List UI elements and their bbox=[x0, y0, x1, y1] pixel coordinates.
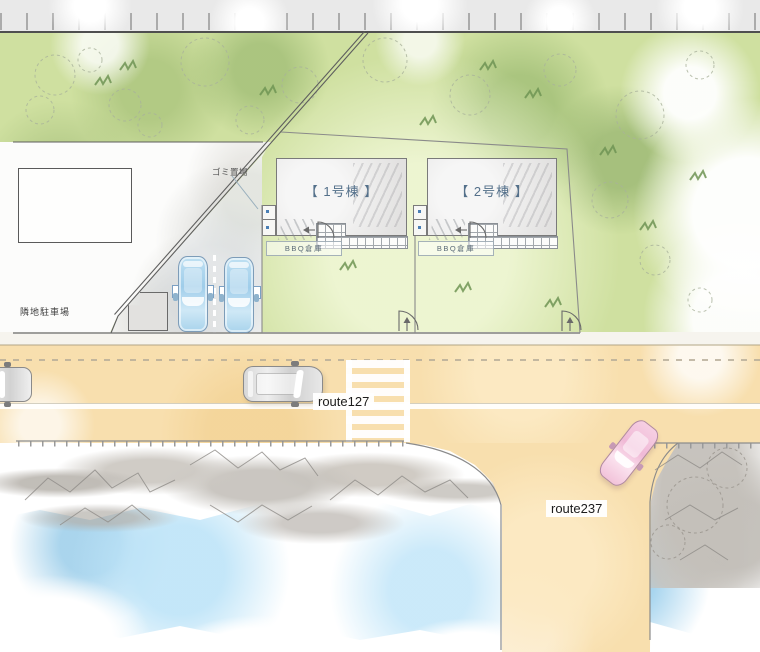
car-mirror bbox=[4, 362, 11, 367]
car-windshield bbox=[0, 371, 5, 398]
utility-box-1a bbox=[262, 205, 276, 220]
rocky-shore-left bbox=[0, 443, 515, 563]
bbq-storage-label-2: BBQ倉庫 bbox=[418, 241, 494, 256]
car-mirror bbox=[173, 293, 178, 301]
hatched-paving-2 bbox=[429, 219, 466, 240]
building-1-label: 【 1号棟 】 bbox=[277, 181, 406, 200]
car-rear-window bbox=[229, 262, 249, 268]
foam-blob bbox=[690, 590, 760, 652]
route127-label: route127 bbox=[313, 393, 374, 410]
building-2-label: 【 2号棟 】 bbox=[428, 181, 556, 200]
car-roof bbox=[184, 268, 202, 293]
car-mirror bbox=[4, 402, 11, 407]
car-mirror bbox=[219, 294, 224, 302]
parking-car-2 bbox=[224, 257, 254, 333]
garbage-area-label: ゴミ置場 bbox=[212, 166, 248, 178]
utility-box-2a bbox=[413, 205, 427, 220]
gray-hatchback-car bbox=[0, 367, 32, 402]
parking-car-1 bbox=[178, 256, 208, 332]
car-windshield bbox=[228, 298, 250, 307]
car-rear-window bbox=[248, 371, 253, 397]
neighbor-parking-lot bbox=[18, 168, 132, 243]
car-mirror bbox=[291, 402, 299, 407]
neighbor-parking-label: 隣地駐車場 bbox=[20, 305, 70, 318]
top-sidewalk bbox=[0, 0, 760, 33]
car-mirror bbox=[208, 293, 213, 301]
road-shoulder-strip bbox=[0, 332, 760, 346]
car-windshield bbox=[182, 297, 204, 306]
route237-label: route237 bbox=[546, 500, 607, 517]
site-plan-illustration: 【 1号棟 】 【 2号棟 】 BBQ倉庫 BBQ倉庫 1号棟用 2号棟用 bbox=[0, 0, 760, 652]
bbq-storage-label-1: BBQ倉庫 bbox=[266, 241, 342, 256]
car-mirror bbox=[291, 361, 299, 366]
hatched-paving-1 bbox=[278, 219, 315, 240]
foam-blob bbox=[0, 575, 150, 652]
watercolor-wash bbox=[0, 0, 760, 31]
foam-blob bbox=[170, 615, 350, 652]
car-roof bbox=[230, 269, 248, 294]
silver-minivan-car bbox=[243, 366, 323, 402]
car-rear-window bbox=[183, 261, 203, 267]
car-mirror bbox=[254, 294, 259, 302]
car-roof bbox=[621, 429, 650, 459]
utility-box-2b bbox=[413, 219, 427, 236]
utility-box-1b bbox=[262, 219, 276, 236]
